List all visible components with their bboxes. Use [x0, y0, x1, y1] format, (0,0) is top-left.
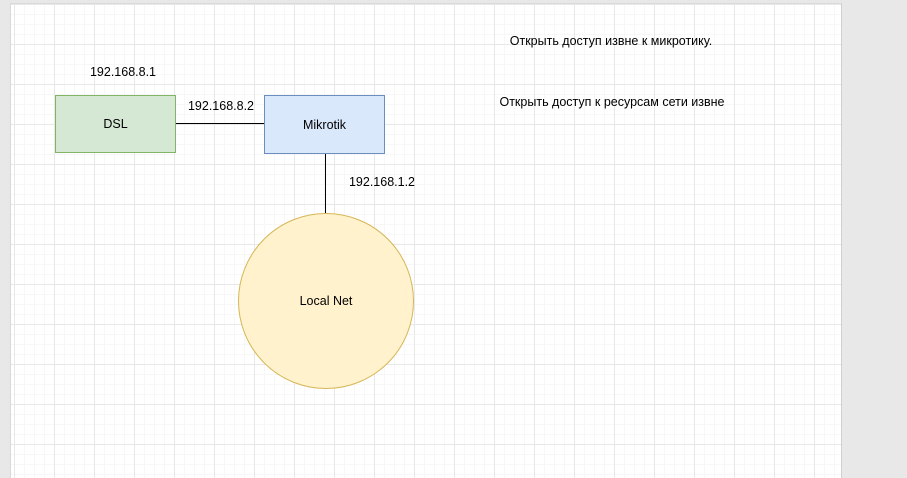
node-localnet-label: Local Net: [300, 294, 353, 308]
node-mikrotik[interactable]: Mikrotik: [264, 95, 385, 154]
edge-mikrotik-localnet[interactable]: [325, 154, 326, 214]
note-open-access-to-network-resources[interactable]: Открыть доступ к ресурсам сети извне: [499, 95, 724, 109]
note-open-access-to-mikrotik[interactable]: Открыть доступ извне к микротику.: [510, 34, 713, 48]
node-dsl-label: DSL: [103, 117, 127, 131]
label-mikrotik-lan-ip[interactable]: 192.168.1.2: [349, 175, 415, 189]
label-dsl-mikrotik-ip[interactable]: 192.168.8.2: [188, 99, 254, 113]
edge-dsl-mikrotik[interactable]: [176, 123, 264, 124]
node-dsl[interactable]: DSL: [55, 95, 176, 153]
node-localnet[interactable]: Local Net: [238, 213, 414, 389]
diagram-viewport: DSL Mikrotik Local Net 192.168.8.1 192.1…: [0, 0, 907, 478]
label-dsl-wan-ip[interactable]: 192.168.8.1: [90, 65, 156, 79]
node-mikrotik-label: Mikrotik: [303, 118, 346, 132]
diagram-page[interactable]: DSL Mikrotik Local Net 192.168.8.1 192.1…: [10, 3, 842, 478]
